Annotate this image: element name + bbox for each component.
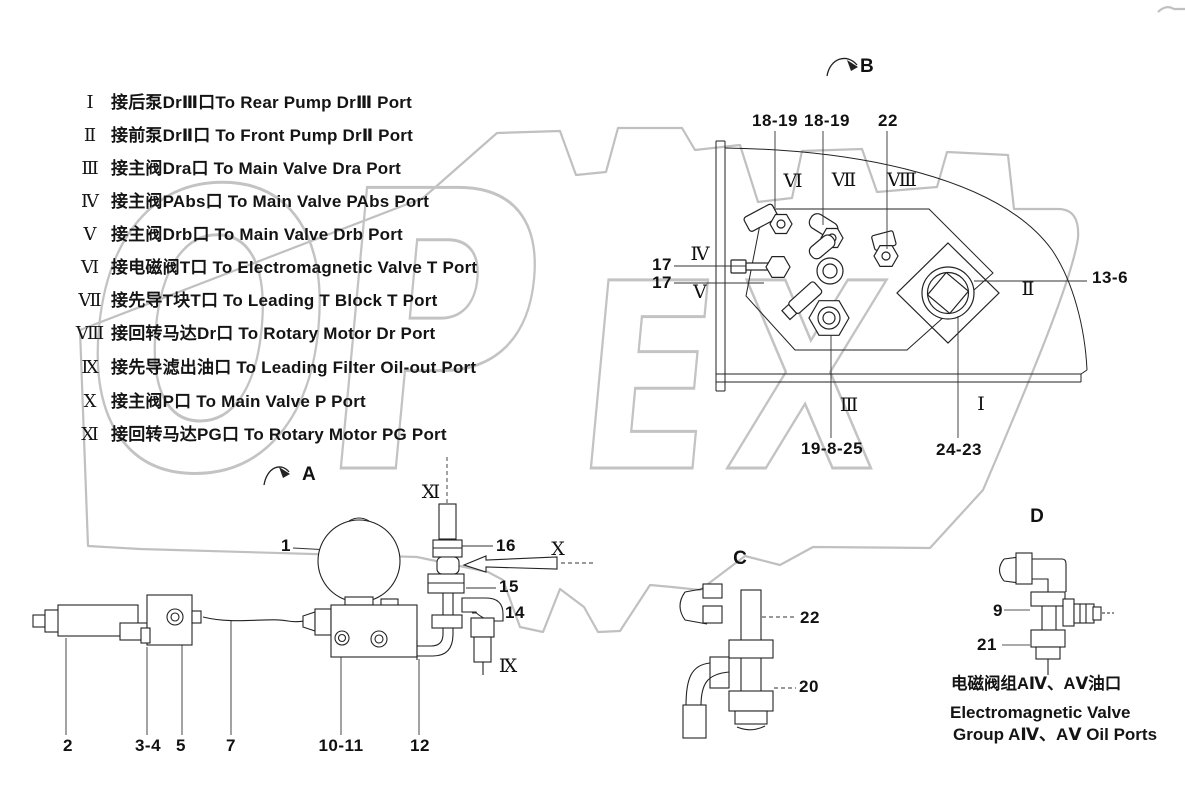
legend-numeral: Ⅴ — [74, 224, 106, 245]
callout-1: 1 — [281, 537, 291, 554]
callout-18-19-a: 18-19 — [752, 112, 798, 129]
callout-2: 2 — [63, 737, 73, 754]
legend-text: 接回转马达Dr口 To Rotary Motor Dr Port — [111, 319, 435, 344]
callout-13-6: 13-6 — [1092, 269, 1128, 286]
legend-row: Ⅸ接先导滤出油口 To Leading Filter Oil-out Port — [74, 353, 476, 378]
port-vii-label: Ⅶ — [832, 171, 857, 190]
legend-numeral: Ⅶ — [74, 290, 106, 311]
legend-text: 接主阀Dra口 To Main Valve Dra Port — [111, 154, 401, 179]
port-ii-label: Ⅱ — [1022, 280, 1035, 299]
port-iii-label: Ⅲ — [840, 396, 858, 415]
view-b-label: B — [860, 57, 874, 76]
accumulator-sphere — [318, 520, 400, 602]
view-a-label: A — [302, 465, 316, 484]
legend-text: 接主阀P口 To Main Valve P Port — [111, 387, 366, 412]
legend-text: 接主阀PAbs口 To Main Valve PAbs Port — [111, 187, 429, 212]
caption-en-line2: Group AⅣ、AⅤ Oil Ports — [953, 726, 1157, 743]
watermark-ex: EX — [567, 230, 914, 530]
legend-numeral: Ⅲ — [74, 158, 106, 179]
callout-5: 5 — [176, 737, 186, 754]
port-iv-label: Ⅳ — [691, 245, 710, 264]
legend-numeral: Ⅳ — [74, 191, 106, 212]
legend-row: Ⅷ接回转马达Dr口 To Rotary Motor Dr Port — [74, 319, 435, 344]
legend-row: Ⅵ接电磁阀T口 To Electromagnetic Valve T Port — [74, 253, 477, 278]
legend-text: 接先导滤出油口 To Leading Filter Oil-out Port — [111, 353, 476, 378]
parts-diagram-page: OP EX — [0, 0, 1185, 787]
legend-text: 接前泵DrⅡ口 To Front Pump DrⅡ Port — [111, 121, 413, 146]
port-v-label: Ⅴ — [693, 283, 707, 302]
view-d-leaders — [1002, 610, 1030, 645]
port-ix-label: Ⅸ — [499, 657, 517, 676]
callout-22-b: 22 — [878, 112, 898, 129]
legend-row: Ⅴ接主阀Drb口 To Main Valve Drb Port — [74, 220, 403, 245]
port-viii-label: Ⅷ — [887, 171, 917, 190]
port-vi-label: Ⅵ — [783, 172, 802, 191]
legend-row: Ⅲ接主阀Dra口 To Main Valve Dra Port — [74, 154, 401, 179]
callout-20: 20 — [799, 678, 819, 695]
callout-19-8-25: 19-8-25 — [801, 440, 863, 457]
legend-text: 接电磁阀T口 To Electromagnetic Valve T Port — [111, 253, 477, 278]
port-i-label: Ⅰ — [977, 395, 985, 414]
caption-en-line1: Electromagnetic Valve — [950, 704, 1130, 721]
callout-12: 12 — [410, 737, 430, 754]
legend-numeral: Ⅱ — [74, 125, 106, 146]
callout-10-11: 10-11 — [318, 737, 363, 754]
view-c-parts — [680, 584, 773, 738]
legend-numeral: Ⅹ — [74, 391, 106, 412]
callout-18-19-b: 18-19 — [804, 112, 850, 129]
legend-text: 接回转马达PG口 To Rotary Motor PG Port — [111, 420, 447, 445]
legend-row: Ⅺ接回转马达PG口 To Rotary Motor PG Port — [74, 420, 447, 445]
callout-14: 14 — [505, 604, 525, 621]
legend-row: Ⅹ接主阀P口 To Main Valve P Port — [74, 387, 366, 412]
legend-row: Ⅰ接后泵DrⅢ口To Rear Pump DrⅢ Port — [74, 88, 412, 113]
legend-numeral: Ⅷ — [74, 323, 106, 344]
callout-17-b: 17 — [646, 274, 672, 291]
legend-numeral: Ⅸ — [74, 357, 106, 378]
legend-numeral: Ⅰ — [74, 92, 106, 113]
legend-text: 接后泵DrⅢ口To Rear Pump DrⅢ Port — [111, 88, 412, 113]
port-xi-label: Ⅺ — [422, 483, 440, 502]
legend-text: 接主阀Drb口 To Main Valve Drb Port — [111, 220, 403, 245]
view-d-parts — [1000, 553, 1115, 675]
callout-15: 15 — [499, 578, 519, 595]
view-d-label: D — [1030, 507, 1044, 526]
callout-17-a: 17 — [646, 256, 672, 273]
legend-numeral: Ⅵ — [74, 257, 106, 278]
callout-7: 7 — [226, 737, 236, 754]
legend-row: Ⅶ接先导T块T口 To Leading T Block T Port — [74, 286, 437, 311]
view-b-arrow — [827, 58, 858, 76]
callout-16: 16 — [496, 537, 516, 554]
port-x-label: Ⅹ — [551, 540, 565, 559]
callout-3-4: 3-4 — [135, 737, 161, 754]
legend-row: Ⅳ接主阀PAbs口 To Main Valve PAbs Port — [74, 187, 429, 212]
callout-24-23: 24-23 — [936, 441, 982, 458]
callout-9: 9 — [993, 602, 1003, 619]
caption-zh: 电磁阀组AⅣ、AⅤ油口 — [951, 676, 1121, 693]
legend-row: Ⅱ接前泵DrⅡ口 To Front Pump DrⅡ Port — [74, 121, 413, 146]
legend-numeral: Ⅺ — [74, 424, 106, 445]
callout-21: 21 — [977, 636, 997, 653]
view-c-label: C — [733, 549, 747, 568]
legend-text: 接先导T块T口 To Leading T Block T Port — [111, 286, 437, 311]
callout-22-c: 22 — [800, 609, 820, 626]
